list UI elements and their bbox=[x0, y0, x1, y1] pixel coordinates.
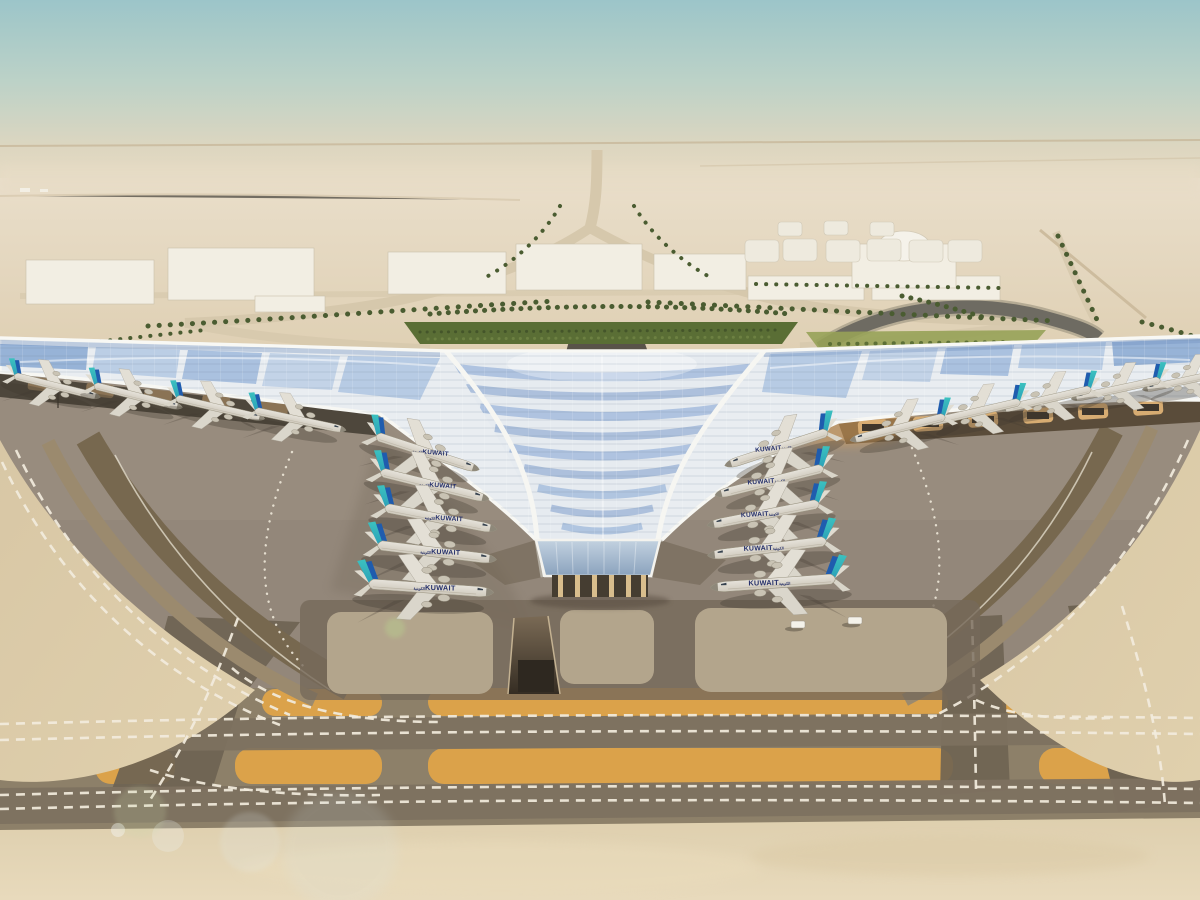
column bbox=[558, 575, 563, 597]
distant-vehicle bbox=[20, 188, 30, 192]
fuel-tank bbox=[783, 239, 817, 261]
fuel-tank bbox=[948, 240, 982, 262]
warehouse bbox=[388, 252, 506, 294]
tunnel-mouth bbox=[518, 660, 554, 692]
warehouse bbox=[26, 260, 154, 304]
warehouse bbox=[516, 244, 642, 290]
flare-circle-green bbox=[114, 786, 166, 838]
fuel-tank bbox=[867, 239, 901, 261]
flare-circle-green bbox=[385, 618, 405, 638]
sand-texture bbox=[750, 836, 1150, 876]
warehouse bbox=[168, 248, 314, 300]
fuel-tank bbox=[909, 240, 943, 262]
airport-rendering: الكويتيةKUWAITالكويتيةKUWAITالكويتيةKUWA… bbox=[0, 0, 1200, 900]
forecourt-block bbox=[695, 608, 947, 692]
fuel-tank bbox=[824, 221, 848, 235]
column bbox=[575, 575, 580, 597]
entrance-interior bbox=[552, 575, 648, 597]
sand-island bbox=[428, 748, 953, 784]
column bbox=[641, 575, 646, 597]
column bbox=[609, 575, 614, 597]
forecourt-block bbox=[327, 612, 493, 694]
flare-circle bbox=[220, 812, 280, 872]
column bbox=[626, 575, 631, 597]
fuel-tank bbox=[826, 240, 860, 262]
warehouse bbox=[654, 254, 746, 290]
sand-island bbox=[235, 748, 382, 784]
rendering-canvas: الكويتيةKUWAITالكويتيةKUWAITالكويتيةKUWA… bbox=[0, 0, 1200, 900]
column bbox=[592, 575, 597, 597]
low-building bbox=[255, 296, 325, 312]
low-building bbox=[748, 276, 864, 300]
entrance-glass bbox=[536, 540, 660, 576]
fuel-tank bbox=[778, 222, 802, 236]
fuel-tank-row-back bbox=[778, 221, 894, 236]
forecourt-block bbox=[560, 610, 654, 684]
distant-vehicle bbox=[40, 189, 48, 192]
fuel-tank bbox=[870, 222, 894, 236]
fuel-tank bbox=[745, 240, 779, 262]
